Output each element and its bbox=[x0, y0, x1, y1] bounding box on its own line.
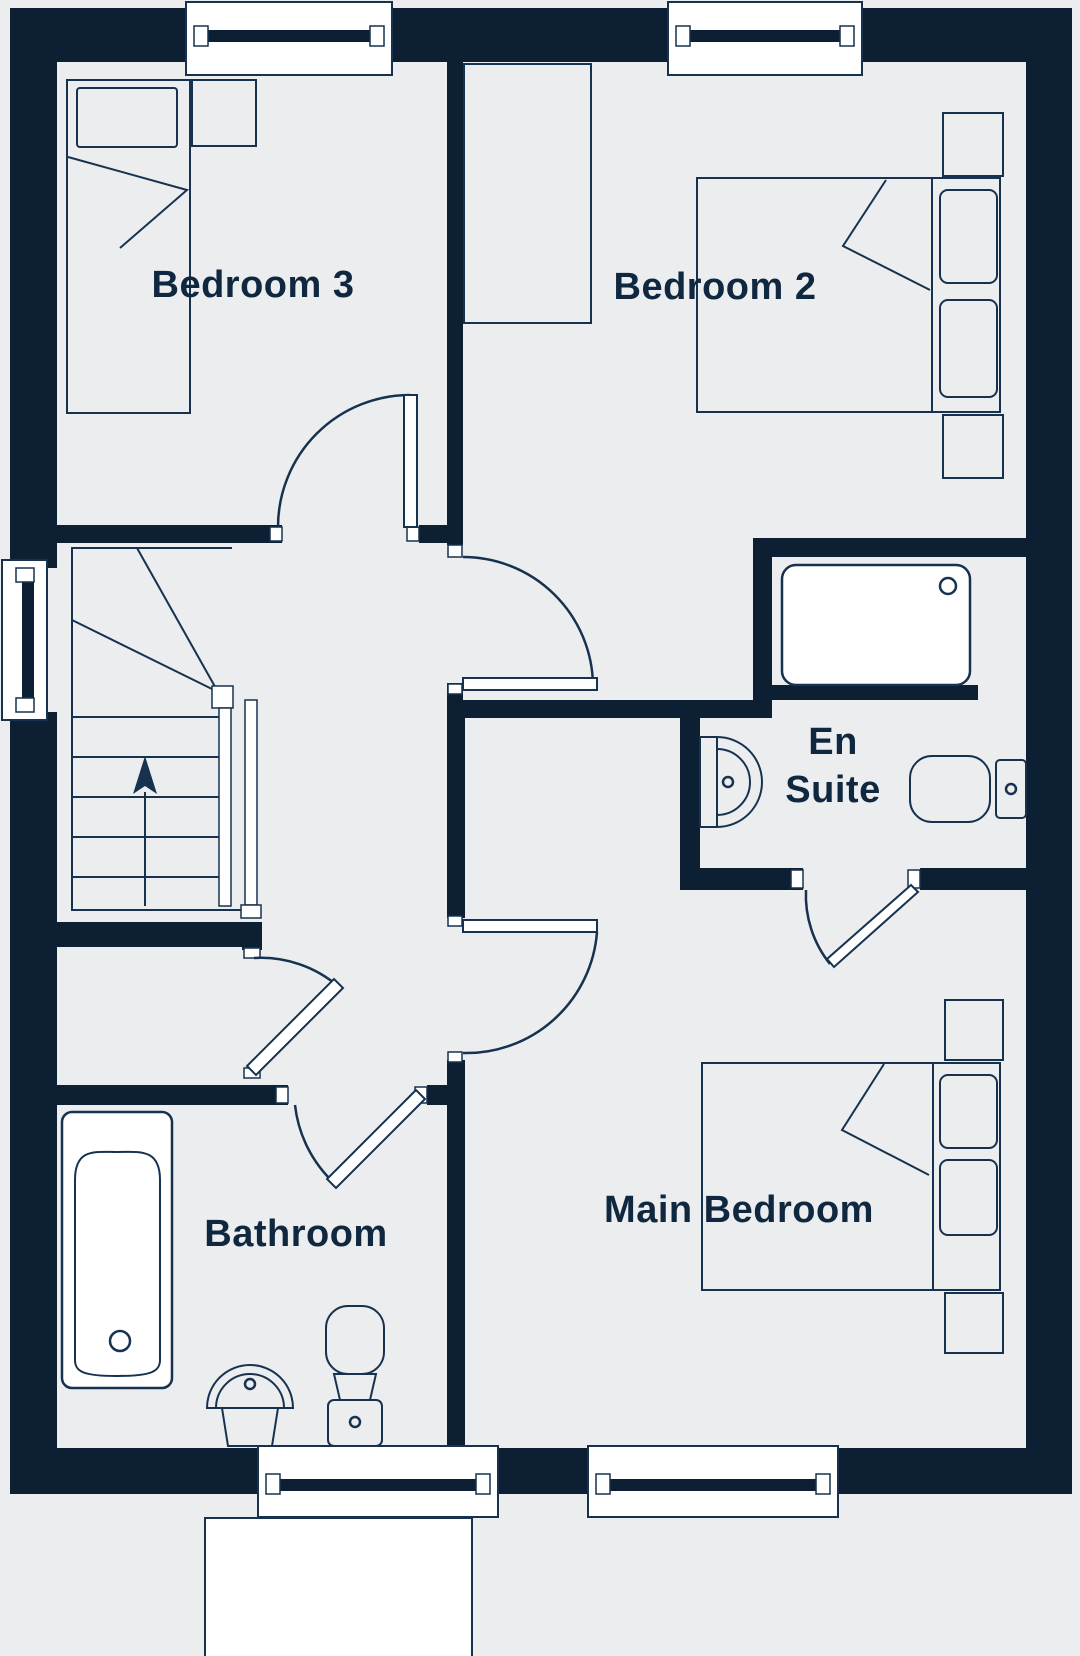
pillow bbox=[940, 190, 997, 283]
double-bed bbox=[702, 1063, 1000, 1290]
window-stairs-left bbox=[2, 560, 47, 720]
window-mainbedroom-bottom bbox=[588, 1446, 838, 1517]
stairs-outline bbox=[72, 548, 243, 910]
wall-ensuite-upper-left bbox=[753, 538, 772, 700]
label-bathroom: Bathroom bbox=[204, 1213, 387, 1255]
bedroom3-furniture bbox=[67, 80, 256, 413]
door-bedroom2 bbox=[463, 557, 597, 690]
bathroom-toilet bbox=[326, 1306, 384, 1446]
stairs-winder-2 bbox=[72, 620, 214, 690]
stairs-up-arrow bbox=[133, 756, 157, 794]
wall-ensuite-lower-left bbox=[680, 718, 700, 890]
bedside-table bbox=[943, 113, 1003, 176]
wall-understairs-stub bbox=[242, 922, 262, 950]
duvet-fold bbox=[843, 180, 930, 290]
wall-ensuite-top bbox=[753, 538, 1026, 557]
pillow bbox=[940, 300, 997, 397]
stairs-handrail-inner bbox=[219, 708, 231, 906]
door-ensuite bbox=[806, 885, 918, 967]
stairs-handrail-foot bbox=[241, 905, 261, 918]
wall-ensuite-bottom-a bbox=[680, 868, 803, 890]
pillow bbox=[940, 1160, 997, 1235]
pillow bbox=[940, 1075, 997, 1148]
door-mainbedroom bbox=[463, 920, 597, 1053]
bedside-table bbox=[945, 1293, 1003, 1353]
wall-bedroom3-bottom-a bbox=[57, 525, 282, 543]
single-bed-duvet-fold bbox=[68, 157, 187, 248]
bedside-table bbox=[943, 415, 1003, 478]
porch-outline bbox=[205, 1518, 472, 1656]
wall-ensuite-bottom-b bbox=[920, 868, 1026, 890]
floor-plan-svg: Bedroom 3 Bedroom 2 En Suite Bathroom Ma… bbox=[0, 0, 1080, 1656]
single-bed bbox=[67, 80, 190, 413]
duvet-fold bbox=[842, 1064, 929, 1175]
wardrobe bbox=[464, 64, 591, 323]
stairs-newel-post bbox=[212, 686, 233, 708]
floor-plan-canvas: Bedroom 3 Bedroom 2 En Suite Bathroom Ma… bbox=[0, 0, 1080, 1656]
door-cupboard bbox=[247, 958, 343, 1075]
label-main-bedroom: Main Bedroom bbox=[604, 1189, 874, 1231]
stairs-winder-1 bbox=[137, 548, 218, 692]
label-ensuite-line2: Suite bbox=[785, 769, 880, 811]
label-bedroom2: Bedroom 2 bbox=[614, 266, 817, 308]
wall-bedroom-divider bbox=[447, 62, 463, 545]
wall-bottom-right bbox=[830, 1448, 1072, 1494]
stairs-handrail-outer bbox=[245, 700, 257, 905]
door-bedroom3 bbox=[278, 395, 417, 527]
wall-bathroom-mainbedroom bbox=[447, 1060, 465, 1448]
wall-bottom-middle bbox=[490, 1448, 596, 1494]
wall-left-upper bbox=[10, 8, 57, 568]
wall-bedroom3-bottom-b bbox=[419, 525, 447, 543]
wall-bathroom-top-b bbox=[427, 1085, 447, 1105]
wall-understairs bbox=[57, 922, 242, 947]
wall-bottom-left bbox=[10, 1448, 266, 1494]
wall-bathroom-top-a bbox=[57, 1085, 288, 1105]
window-bathroom-bottom bbox=[258, 1446, 498, 1517]
wall-ensuite-shower bbox=[772, 685, 978, 700]
window-bedroom3-top bbox=[186, 2, 392, 75]
bathtub bbox=[62, 1112, 172, 1388]
wall-top-middle bbox=[384, 8, 676, 62]
wall-hall-mainbedroom bbox=[447, 718, 465, 918]
bathroom-sink bbox=[207, 1365, 293, 1446]
ensuite-toilet bbox=[910, 756, 1026, 822]
bedside-table bbox=[192, 80, 256, 146]
bedside-table bbox=[945, 1000, 1003, 1060]
window-bedroom2-top bbox=[668, 2, 862, 75]
bathroom-fixtures bbox=[62, 1112, 384, 1446]
staircase bbox=[72, 548, 261, 918]
door-bathroom bbox=[295, 1090, 425, 1188]
label-ensuite-line1: En bbox=[808, 721, 858, 763]
wall-right bbox=[1026, 8, 1072, 1494]
single-bed-pillow bbox=[77, 88, 177, 147]
mainbedroom-furniture bbox=[702, 1000, 1003, 1353]
wall-bedroom2-mainbedroom bbox=[447, 700, 772, 718]
label-bedroom3: Bedroom 3 bbox=[152, 264, 355, 306]
wall-left-lower bbox=[10, 712, 57, 1494]
ensuite-sink bbox=[700, 737, 762, 827]
